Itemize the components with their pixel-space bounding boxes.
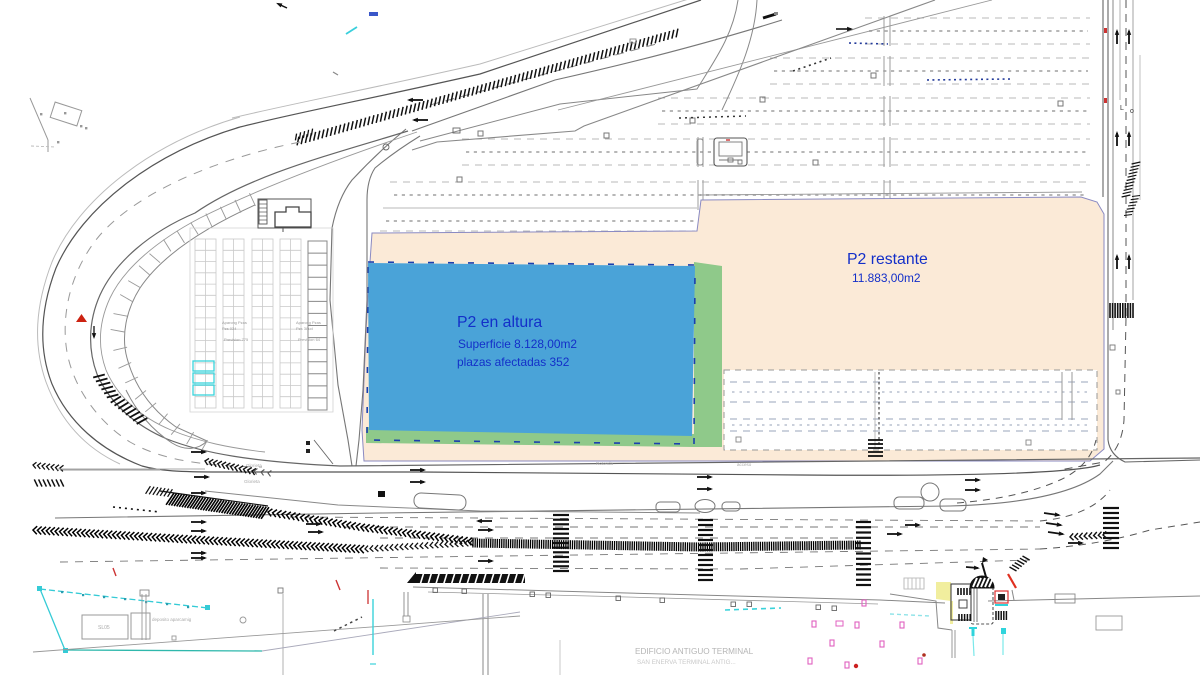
svg-text:EDIFICIO ANTIGUO TERMINAL: EDIFICIO ANTIGUO TERMINAL xyxy=(635,647,754,656)
svg-text:o: o xyxy=(1130,108,1134,115)
svg-text:Pzs 38ud: Pzs 38ud xyxy=(296,326,313,331)
svg-text:Glorieta: Glorieta xyxy=(246,463,262,468)
svg-text:P2 en altura: P2 en altura xyxy=(457,314,542,331)
svg-text:plazas afectadas 352: plazas afectadas 352 xyxy=(457,355,570,369)
svg-text:Aparcng Pzas: Aparcng Pzas xyxy=(296,320,321,325)
svg-text:P2 restante: P2 restante xyxy=(847,251,928,268)
svg-text:Aparcng Pzas: Aparcng Pzas xyxy=(222,320,247,325)
svg-text:L: L xyxy=(1120,105,1124,112)
svg-text:Pzs 034: Pzs 034 xyxy=(222,326,237,331)
svg-text:Rotonda: Rotonda xyxy=(596,461,614,466)
svg-text:SAN ENERVA TERMINAL ANTIG...: SAN ENERVA TERMINAL ANTIG... xyxy=(637,659,736,666)
svg-text:Prevision 64: Prevision 64 xyxy=(298,337,321,342)
svg-text:SL05: SL05 xyxy=(98,625,110,631)
svg-text:acceso: acceso xyxy=(737,462,752,467)
svg-text:Prevision 775: Prevision 775 xyxy=(224,337,249,342)
svg-text:deposito aparcamig: deposito aparcamig xyxy=(152,617,192,622)
svg-text:Glorieta: Glorieta xyxy=(244,479,260,484)
svg-text:11.883,00m2: 11.883,00m2 xyxy=(852,271,921,285)
svg-text:Superficie 8.128,00m2: Superficie 8.128,00m2 xyxy=(458,337,577,351)
